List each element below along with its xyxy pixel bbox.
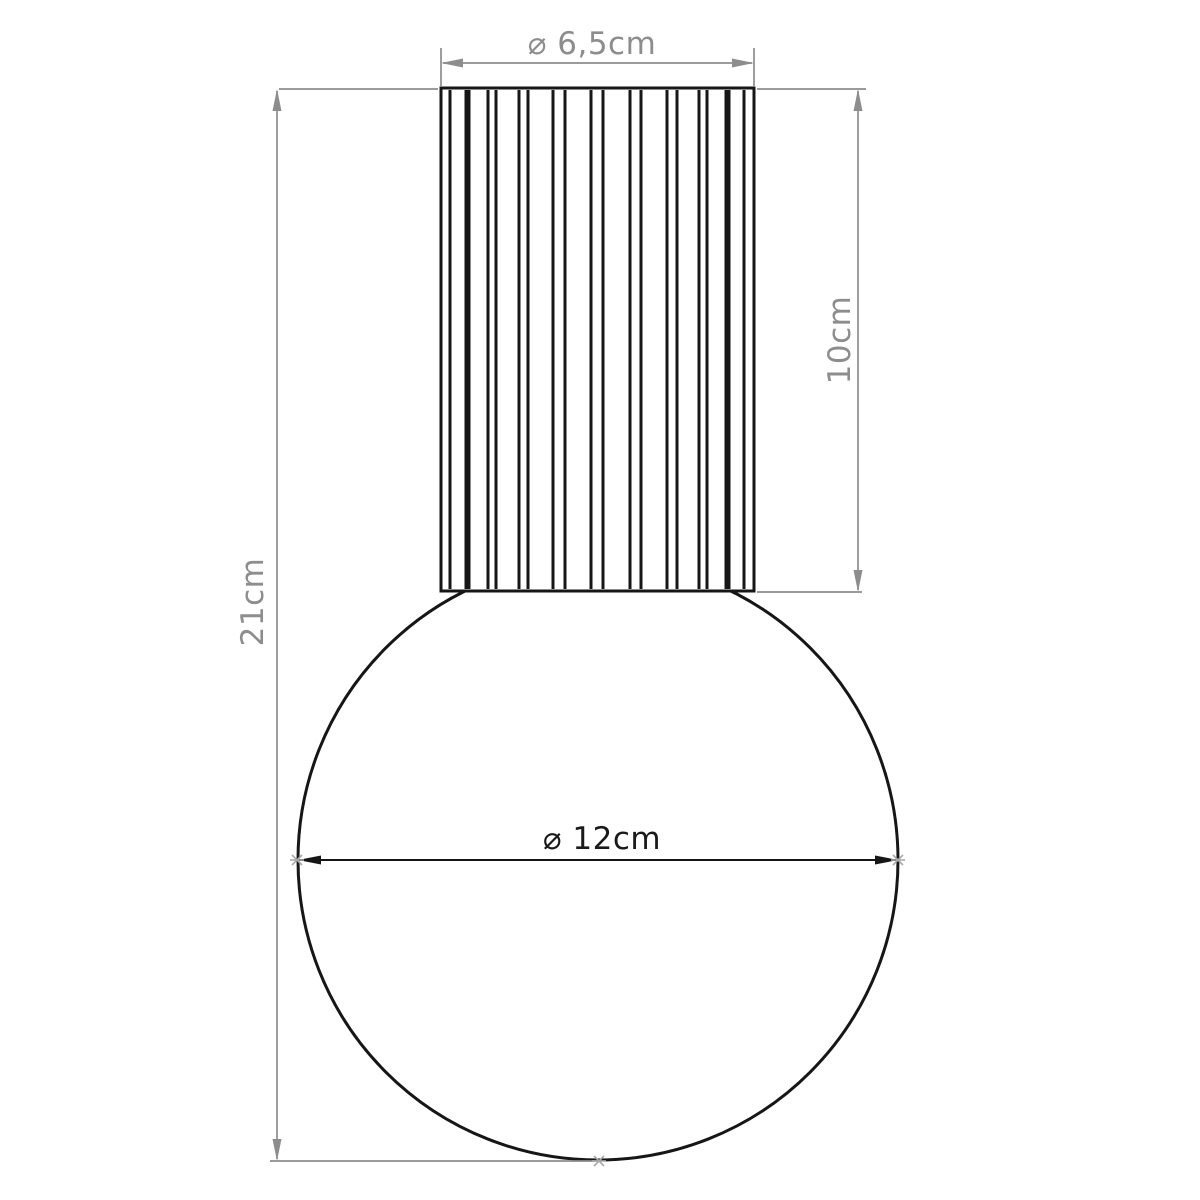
label-total-height: 21cm [235, 558, 271, 647]
point-markers [290, 855, 905, 1166]
arrowhead-right-icon [732, 59, 754, 68]
arrowhead-down-icon [854, 570, 863, 592]
label-cylinder-diameter: ⌀ 6,5cm [528, 26, 657, 62]
arrowhead-up-icon [854, 89, 863, 111]
label-sphere-diameter: ⌀ 12cm [543, 821, 661, 857]
arrowhead-up-icon [273, 89, 282, 111]
arrowhead-down-icon [273, 1139, 282, 1161]
technical-drawing-canvas: ⌀ 6,5cm 10cm 21cm ⌀ 12cm [0, 0, 1200, 1200]
arrowhead-left-icon [441, 59, 463, 68]
label-cylinder-height: 10cm [822, 296, 858, 385]
lamp-linework [298, 88, 898, 1160]
star-marker-icon [592, 1156, 606, 1166]
drawing-svg [0, 0, 1200, 1200]
